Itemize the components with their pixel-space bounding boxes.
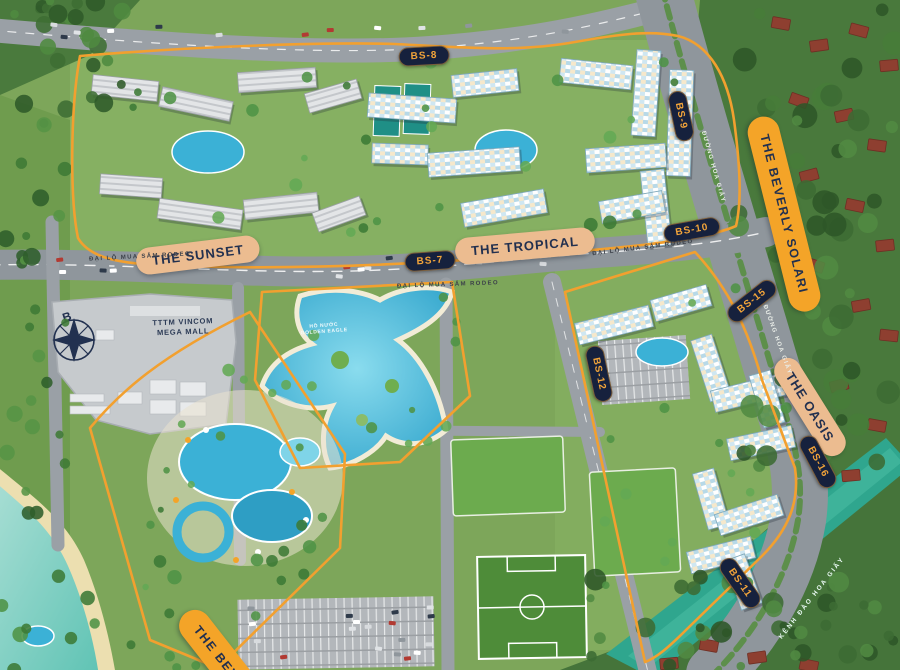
- masterplan-map: B: [0, 0, 900, 670]
- masterplan-rendering: B: [0, 0, 900, 670]
- water-park: [147, 390, 343, 566]
